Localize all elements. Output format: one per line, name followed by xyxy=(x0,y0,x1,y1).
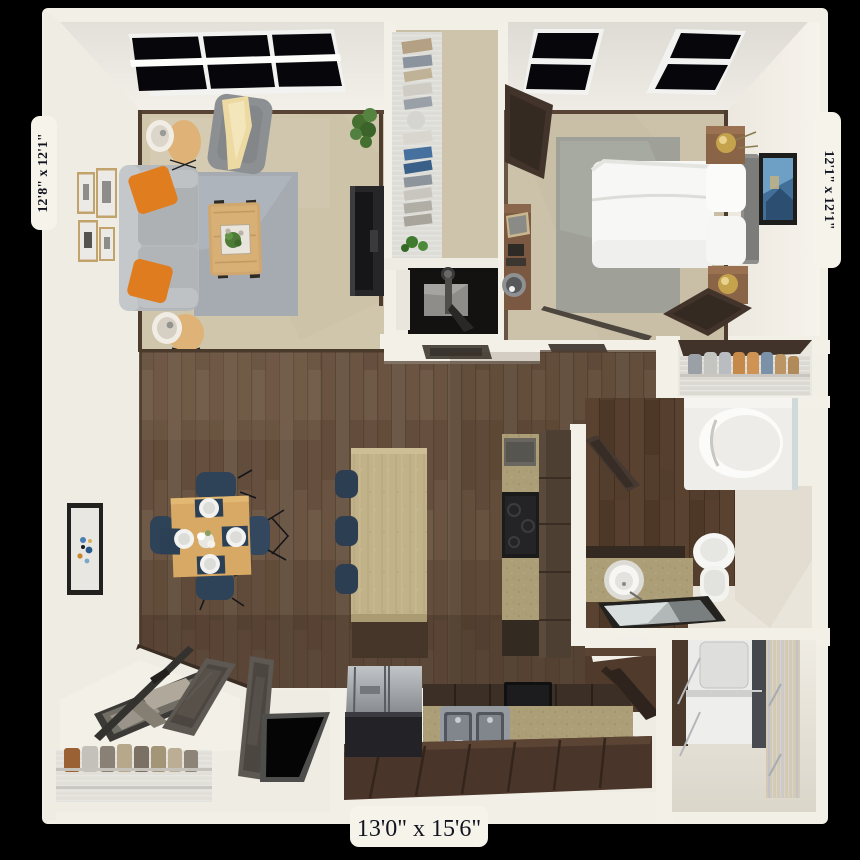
svg-text:12'1" x 12'1": 12'1" x 12'1" xyxy=(821,150,836,229)
svg-text:13'0" x 15'6": 13'0" x 15'6" xyxy=(357,816,481,842)
svg-text:12'8" x 12'1": 12'8" x 12'1" xyxy=(36,133,51,212)
